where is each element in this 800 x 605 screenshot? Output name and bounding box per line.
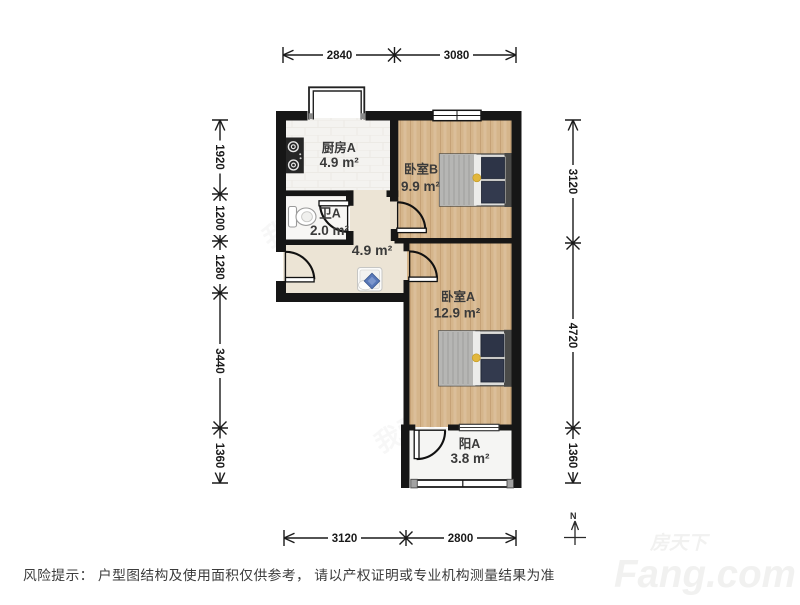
svg-text:4.9 m²: 4.9 m² — [320, 155, 360, 170]
svg-text:12.9 m²: 12.9 m² — [434, 305, 481, 320]
svg-text:4.9 m²: 4.9 m² — [352, 242, 393, 258]
svg-text:2.0 m²: 2.0 m² — [310, 223, 350, 238]
svg-text:9.9 m²: 9.9 m² — [401, 179, 441, 194]
svg-text:1360: 1360 — [566, 443, 578, 469]
svg-text:风险提示： 户型图结构及使用面积仅供参考， 请以产权证明或专: 风险提示： 户型图结构及使用面积仅供参考， 请以产权证明或专业机构测量结果为准 — [23, 567, 555, 583]
svg-text:1200: 1200 — [213, 205, 225, 231]
svg-text:1280: 1280 — [213, 254, 225, 280]
svg-text:3.8 m²: 3.8 m² — [450, 451, 490, 466]
svg-text:厨房A: 厨房A — [322, 140, 356, 155]
svg-text:房天下: 房天下 — [649, 532, 711, 554]
svg-text:2840: 2840 — [327, 50, 353, 62]
svg-text:阳A: 阳A — [459, 436, 481, 451]
svg-text:Fang.com: Fang.com — [614, 553, 796, 596]
svg-text:卫A: 卫A — [319, 206, 341, 220]
svg-text:3120: 3120 — [566, 169, 578, 195]
svg-text:卧室B: 卧室B — [404, 162, 438, 177]
svg-text:4720: 4720 — [566, 323, 578, 349]
svg-text:3440: 3440 — [213, 348, 225, 374]
svg-text:3080: 3080 — [444, 50, 470, 62]
svg-text:3120: 3120 — [332, 533, 358, 545]
svg-text:1360: 1360 — [213, 443, 225, 469]
svg-text:卧室A: 卧室A — [441, 289, 475, 304]
svg-text:N: N — [570, 511, 577, 521]
svg-text:1920: 1920 — [213, 144, 225, 170]
svg-text:2800: 2800 — [448, 533, 474, 545]
